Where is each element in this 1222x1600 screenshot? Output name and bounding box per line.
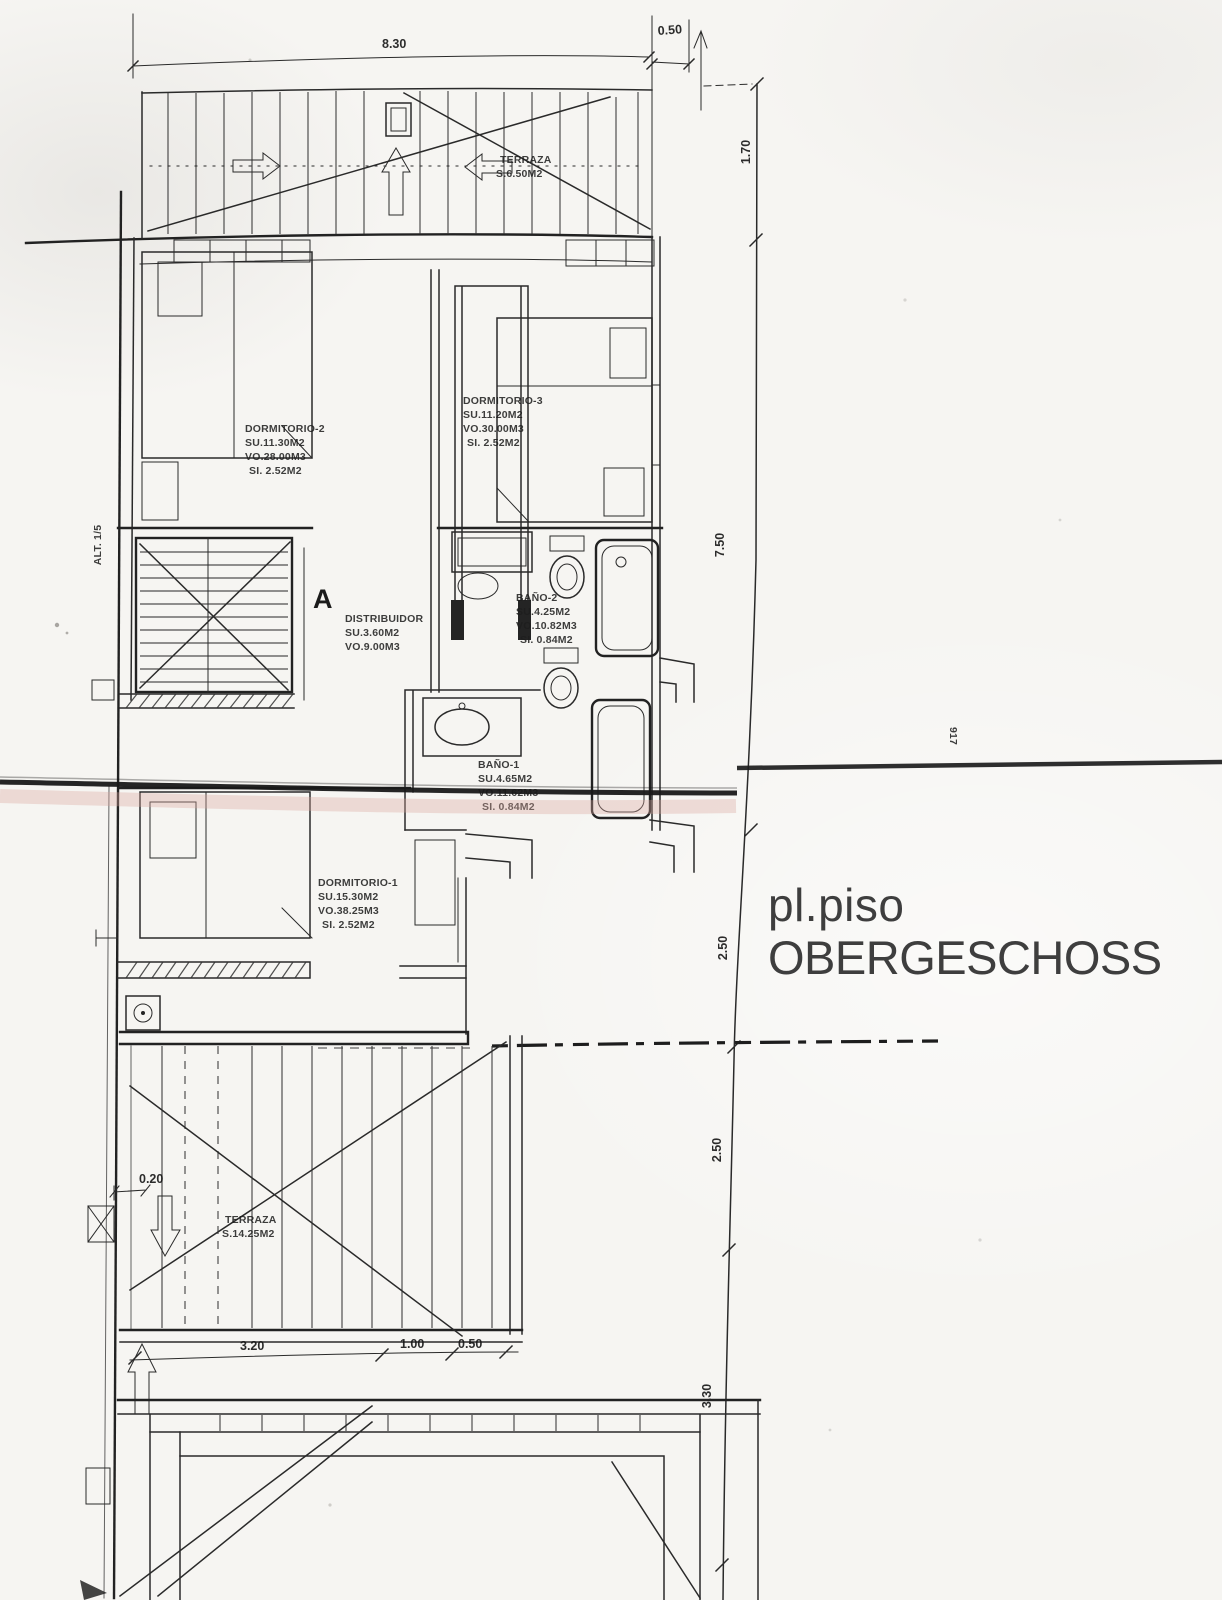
room-label-dormitorio-1: DORMITORIO-1 (318, 877, 398, 889)
dim-right-2: 7.50 (713, 533, 727, 557)
terrace-lower: TERRAZA S.14.25M2 0.20 (88, 996, 522, 1414)
nightstand (604, 468, 644, 516)
pillow (610, 328, 646, 378)
dim-bottom-3: 0.50 (458, 1337, 482, 1351)
toilet-tank (544, 648, 578, 663)
floor-title-line1: pl.piso (768, 880, 1162, 931)
dim-right-1: 1.70 (739, 140, 753, 164)
paper-stains (55, 59, 1062, 1507)
door-leaf (415, 840, 455, 925)
margin-marks (80, 680, 118, 1600)
svg-text:SU.11.20M2: SU.11.20M2 (463, 409, 523, 421)
svg-text:SU.4.65M2: SU.4.65M2 (478, 773, 532, 785)
svg-text:VO.9.00M3: VO.9.00M3 (345, 641, 400, 653)
svg-text:SU.11.30M2: SU.11.30M2 (245, 437, 305, 449)
floor-title: pl.piso OBERGESCHOSS (768, 880, 1162, 985)
side-note-text: 917 (947, 727, 959, 745)
dim-bottom-1: 3.20 (240, 1339, 264, 1353)
scanned-floorplan-page: 8.30 0.50 1.70 7.50 2.50 2.50 3.30 917 T… (0, 0, 1222, 1600)
scan-fold-line (0, 762, 1222, 807)
svg-text:VO.30.00M3: VO.30.00M3 (463, 423, 524, 435)
bathroom-1: BAÑO-1 SU.4.65M2 VO.11.62M3 SI. 0.84M2 (405, 648, 694, 872)
svg-text:SU.15.30M2: SU.15.30M2 (318, 891, 378, 903)
section-mark: A (313, 584, 333, 614)
dim-left-offset: 0.20 (139, 1172, 163, 1186)
room-label-dormitorio-3: DORMITORIO-3 (463, 395, 543, 407)
toilet (544, 668, 578, 708)
svg-text:VO.38.25M3: VO.38.25M3 (318, 905, 379, 917)
dim-right-4: 2.50 (710, 1138, 724, 1162)
floor-title-line2: OBERGESCHOSS (768, 931, 1162, 985)
room-label-dormitorio-2: DORMITORIO-2 (245, 423, 325, 435)
corner-blob (80, 1580, 107, 1600)
bed (140, 792, 310, 938)
roof-lower (118, 1400, 760, 1600)
sink (435, 709, 489, 745)
right-dimension-line: 1.70 7.50 2.50 2.50 3.30 917 (700, 78, 959, 1600)
exterior-walls (104, 192, 660, 1598)
room-label-distribuidor: DISTRIBUIDOR (345, 613, 423, 625)
stair-note: ALT. 1/5 (92, 525, 104, 566)
svg-text:SU.4.25M2: SU.4.25M2 (516, 606, 570, 618)
room-label-terraza-bottom: TERRAZA (225, 1214, 277, 1226)
bathtub (596, 540, 658, 656)
svg-text:SI. 2.52M2: SI. 2.52M2 (467, 437, 520, 449)
dim-top-offset: 0.50 (657, 22, 682, 38)
room-area-terraza-top: S.6.50M2 (496, 168, 543, 180)
bedroom-1: DORMITORIO-1 SU.15.30M2 VO.38.25M3 SI. 2… (118, 788, 532, 1034)
svg-text:VO.28.00M3: VO.28.00M3 (245, 451, 306, 463)
svg-text:SI. 2.52M2: SI. 2.52M2 (249, 465, 302, 477)
bedroom-2: DORMITORIO-2 SU.11.30M2 VO.28.00M3 SI. 2… (142, 240, 325, 520)
svg-text:VO.10.82M3: VO.10.82M3 (516, 620, 577, 632)
vanity (423, 698, 521, 756)
dim-right-5: 3.30 (700, 1384, 714, 1408)
wall-step (466, 834, 532, 878)
bottom-dimension: 3.20 1.00 0.50 (129, 1337, 518, 1364)
toilet-tank (550, 536, 584, 551)
wall-step (660, 658, 694, 702)
room-label-bano-2: BAÑO-2 (516, 591, 557, 604)
room-area-terraza-bottom: S.14.25M2 (222, 1228, 275, 1240)
top-dimension: 8.30 0.50 (128, 14, 752, 240)
pillow (158, 262, 202, 316)
svg-text:SI. 0.84M2: SI. 0.84M2 (520, 634, 573, 646)
hatch-lines (162, 1046, 492, 1328)
bathroom-2: BAÑO-2 SU.4.25M2 VO.10.82M3 SI. 0.84M2 (452, 532, 694, 702)
wardrobe (174, 240, 310, 262)
svg-text:SU.3.60M2: SU.3.60M2 (345, 627, 399, 639)
room-label-terraza-top: TERRAZA (500, 154, 552, 166)
dim-top-width: 8.30 (382, 37, 406, 51)
arrow-down-icon (151, 1196, 180, 1256)
dim-bottom-2: 1.00 (400, 1337, 424, 1351)
dim-right-3: 2.50 (716, 936, 730, 960)
arrow-up-icon (128, 1344, 156, 1414)
wall-step (650, 820, 694, 872)
room-label-bano-1: BAÑO-1 (478, 758, 519, 771)
drain (616, 557, 626, 567)
floorplan-svg: 8.30 0.50 1.70 7.50 2.50 2.50 3.30 917 T… (0, 0, 1222, 1600)
arrow-up-icon (382, 148, 410, 215)
svg-text:SI. 2.52M2: SI. 2.52M2 (322, 919, 375, 931)
pillow (150, 802, 196, 858)
sink (458, 573, 498, 599)
nightstand (142, 462, 178, 520)
